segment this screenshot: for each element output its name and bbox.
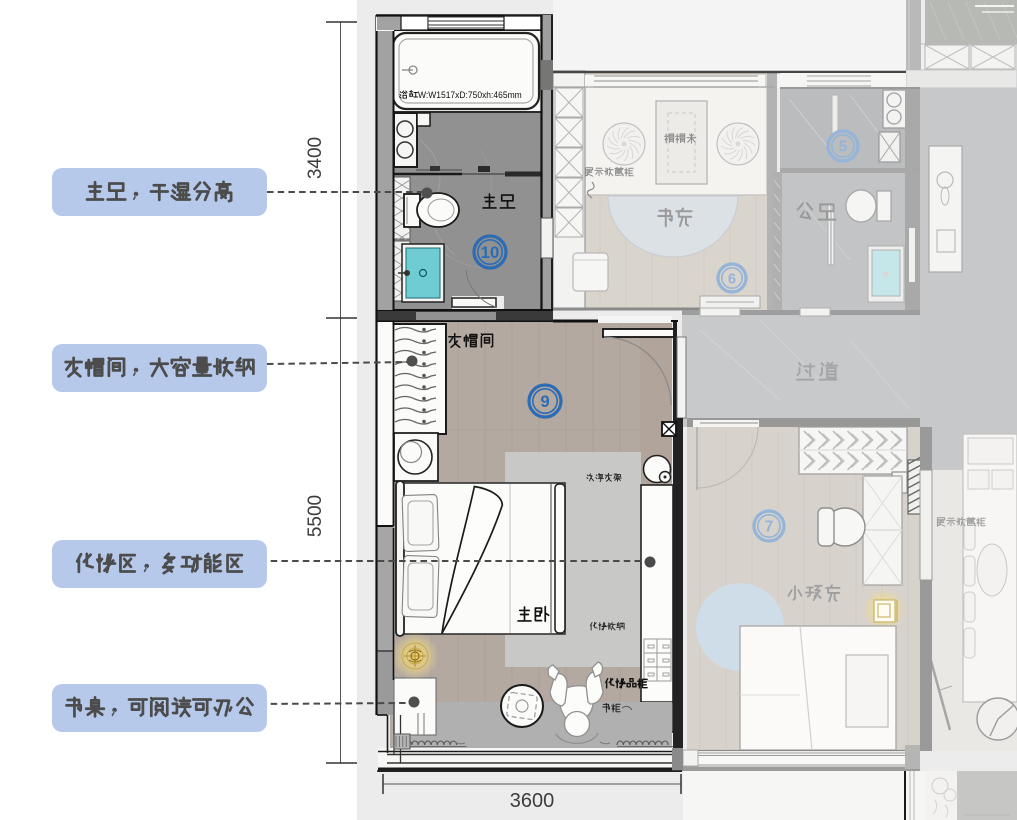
svg-text:7: 7 <box>765 519 774 536</box>
svg-text:3600: 3600 <box>510 790 555 812</box>
svg-text:W:W1517xD:750xh:465mm: W:W1517xD:750xh:465mm <box>418 90 522 101</box>
svg-text:9: 9 <box>540 392 549 411</box>
svg-text:5500: 5500 <box>305 495 326 537</box>
svg-text:3400: 3400 <box>305 137 326 179</box>
svg-text:6: 6 <box>728 271 736 287</box>
svg-text:5: 5 <box>839 139 848 156</box>
svg-text:10: 10 <box>481 243 500 262</box>
